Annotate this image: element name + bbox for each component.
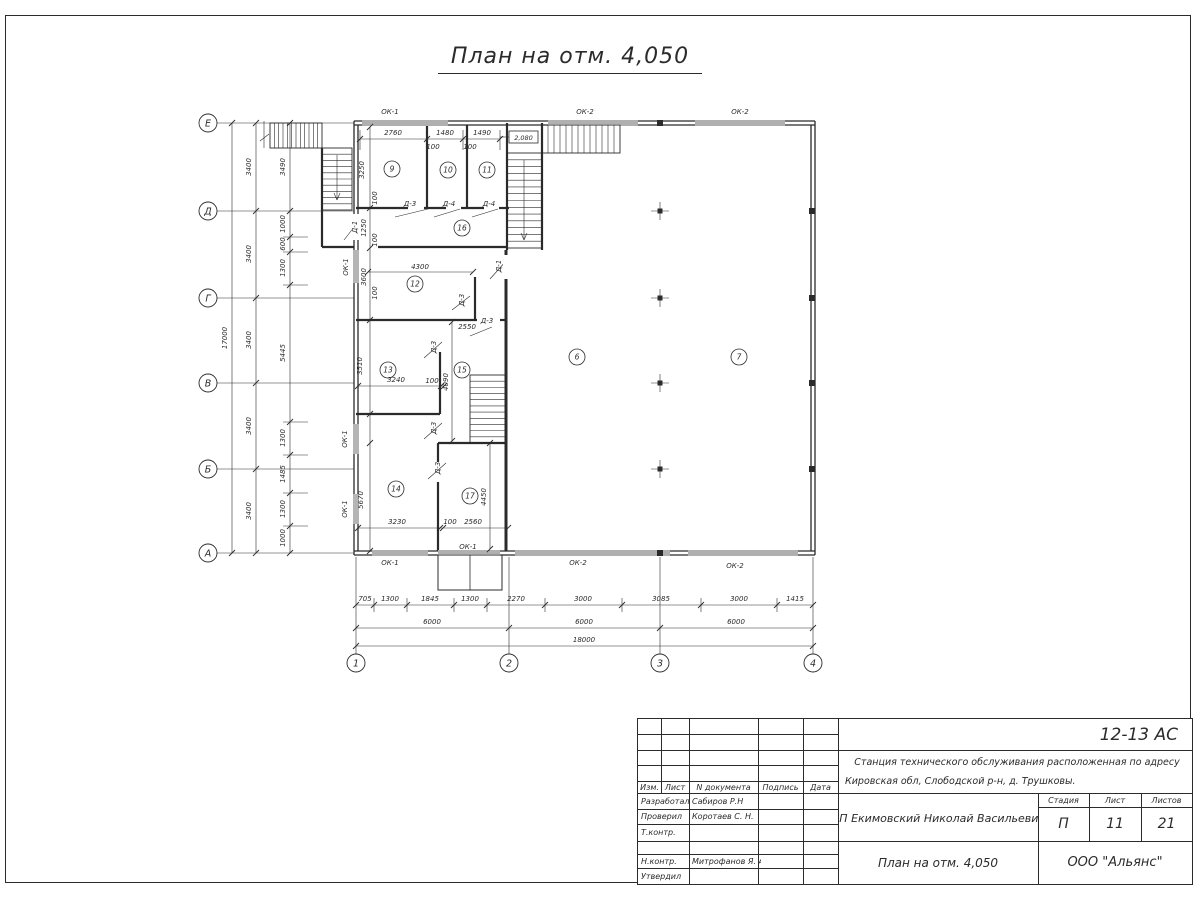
stamp-doc-number: 12-13 АС <box>968 719 1178 750</box>
drawing-title: План на отм. 4,050 <box>438 44 702 74</box>
stamp-role: Разработал <box>638 793 692 809</box>
window-label: ОК-2 <box>569 559 587 567</box>
stamp-name <box>689 868 761 884</box>
dim-text: 6000 <box>727 618 745 626</box>
column <box>658 296 663 301</box>
column <box>658 209 663 214</box>
axis-label: Г <box>205 294 211 305</box>
dim-text: 4450 <box>480 488 488 506</box>
column <box>658 467 663 472</box>
column <box>658 381 663 386</box>
room-number: 15 <box>457 366 467 375</box>
door-label: Д-3 <box>434 462 442 475</box>
stamp-name: Митрофанов Я. А. <box>689 854 761 868</box>
stamp-header-doc: N документа <box>689 781 758 793</box>
dimension-line <box>521 233 524 240</box>
dim-text: 100 <box>371 286 379 300</box>
dim-text: 1300 <box>381 595 399 603</box>
room-number: 6 <box>575 353 580 362</box>
dim-text: 100 <box>425 377 439 385</box>
room-number: 14 <box>391 485 401 494</box>
dim-text: 3000 <box>574 595 592 603</box>
dim-text: 3490 <box>279 158 287 176</box>
stamp-role: Т.контр. <box>638 824 692 841</box>
dim-text: 1300 <box>279 500 287 518</box>
axis-label: А <box>204 549 212 560</box>
dim-text: 3085 <box>652 595 670 603</box>
window-label: ОК-2 <box>576 108 594 116</box>
dim-text: 4300 <box>411 263 429 271</box>
stamp-name: Сабиров Р.Н <box>689 793 761 809</box>
door-label: Д-4 <box>442 200 455 208</box>
window-label: ОК-1 <box>342 258 350 275</box>
wall-column <box>809 380 815 386</box>
dimension-line <box>260 134 269 141</box>
room-number: 12 <box>410 280 420 289</box>
axis-label: Д <box>203 207 211 218</box>
dim-text: 100 <box>443 518 457 526</box>
door-opening <box>503 255 510 279</box>
dim-text: 4090 <box>442 373 450 391</box>
wall-column <box>657 120 663 126</box>
dim-text: 3510 <box>356 357 364 375</box>
stamp-stage-header: Стадия <box>1038 793 1089 807</box>
wall-column <box>657 550 663 556</box>
dim-text: 6000 <box>423 618 441 626</box>
dimension-line <box>524 233 527 240</box>
door-label: Д-1 <box>351 221 359 234</box>
room-number: 13 <box>383 366 393 375</box>
room-number: 16 <box>457 224 467 233</box>
window-label: ОК-2 <box>731 108 749 116</box>
dim-text: 3250 <box>358 161 366 179</box>
dim-text: 1845 <box>421 595 439 603</box>
axis-label: Б <box>205 465 212 476</box>
dim-text: 100 <box>371 191 379 205</box>
dim-text: 2550 <box>458 323 476 331</box>
stamp-organization: ООО "Альянс" <box>1038 841 1192 884</box>
door-label: Д-4 <box>482 200 495 208</box>
dim-text: 3400 <box>245 331 253 349</box>
stair-flight <box>470 375 505 443</box>
dimension-line <box>434 209 460 217</box>
dim-text: 18000 <box>573 636 596 644</box>
dim-text: 3600 <box>360 268 368 286</box>
dim-text: 3400 <box>245 158 253 176</box>
dim-text: 3400 <box>245 502 253 520</box>
window-label: ОК-1 <box>341 430 349 447</box>
dim-text: 100 <box>371 233 379 247</box>
dim-text: 1300 <box>279 429 287 447</box>
stamp-name: Коротаев С. Н. <box>689 809 761 824</box>
dim-text: 1490 <box>473 129 491 137</box>
door-label: Д-3 <box>403 200 416 208</box>
wall-column <box>809 295 815 301</box>
dim-text: 1000 <box>279 529 287 547</box>
dim-text: 705 <box>358 595 372 603</box>
dim-text: 100 <box>463 143 477 151</box>
dim-text: 3230 <box>388 518 406 526</box>
stamp-role: Проверил <box>638 809 692 824</box>
door-label: Д-3 <box>480 317 493 325</box>
dim-text: 100 <box>426 143 440 151</box>
dimension-line <box>337 193 340 200</box>
axis-label: В <box>205 379 212 390</box>
stamp-sheet-value: 11 <box>1089 807 1141 841</box>
stamp-sheet-header: Лист <box>1089 793 1141 807</box>
room-number: 7 <box>737 353 742 362</box>
door-label: Д-3 <box>430 341 438 354</box>
stamp-sheets-header: Листов <box>1141 793 1192 807</box>
stamp-header-date: Дата <box>803 781 838 793</box>
window-label: ОК-1 <box>341 500 349 517</box>
window-label: ОК-1 <box>381 559 398 567</box>
dim-text: 1000 <box>279 215 287 233</box>
dim-text: 3400 <box>245 245 253 263</box>
room-number: 11 <box>482 166 492 175</box>
dim-text: 1415 <box>786 595 804 603</box>
dim-text: 1485 <box>279 465 287 483</box>
dim-text: 17000 <box>221 326 229 349</box>
dim-text: 2270 <box>507 595 525 603</box>
stamp-sheet-title: План на отм. 4,050 <box>838 841 1038 884</box>
dimension-line <box>395 209 428 217</box>
dim-text: 600 <box>279 237 287 251</box>
stamp-header-sign: Подпись <box>758 781 803 793</box>
dim-text: 1250 <box>360 219 368 237</box>
door-label: Д-3 <box>458 294 466 307</box>
title-block: Изм. Лист N документа Подпись Дата Разра… <box>637 718 1193 885</box>
door-label: Д-1 <box>495 260 503 273</box>
dim-text: 2560 <box>464 518 482 526</box>
axis-label: 2 <box>506 659 512 670</box>
axis-label: 4 <box>810 659 816 670</box>
stamp-sheets-value: 21 <box>1141 807 1192 841</box>
stamp-header-list: Лист <box>661 781 689 793</box>
room-number: 17 <box>465 492 475 501</box>
axis-label: 1 <box>353 659 359 670</box>
stamp-project-line2: Кировская обл, Слободской р-н, д. Трушко… <box>842 771 1195 791</box>
window-label: ОК-1 <box>381 108 398 116</box>
dim-text: 5670 <box>357 491 365 509</box>
wall-column <box>809 208 815 214</box>
dim-text: 6000 <box>575 618 593 626</box>
drawing-sheet: { "sheet": { "title": "План на отм. 4,05… <box>0 0 1200 900</box>
window-label: ОК-1 <box>459 543 476 551</box>
dim-text: 3400 <box>245 417 253 435</box>
dim-text: 1480 <box>436 129 454 137</box>
room-number: 10 <box>443 166 453 175</box>
dim-text: 1300 <box>461 595 479 603</box>
stamp-client: ИП Екимовский Николай Васильевич <box>838 795 1038 841</box>
dim-text: 2760 <box>384 129 402 137</box>
stamp-stage-value: П <box>1038 807 1089 841</box>
window-label: ОК-2 <box>726 562 744 570</box>
dim-text: 5445 <box>279 344 287 362</box>
wall-column <box>809 466 815 472</box>
axis-label: Е <box>205 119 211 130</box>
stamp-role: Утвердил <box>638 868 692 884</box>
dim-text: 1300 <box>279 259 287 277</box>
dimension-line <box>472 209 498 217</box>
dimension-line <box>334 193 337 200</box>
stamp-header-izm: Изм. <box>638 781 661 793</box>
stamp-name <box>689 824 761 841</box>
axis-label: 3 <box>657 659 663 670</box>
dim-text: 3000 <box>730 595 748 603</box>
door-label: Д-3 <box>430 422 438 435</box>
room-number: 9 <box>390 165 395 174</box>
dim-text: 3240 <box>387 376 405 384</box>
stamp-role: Н.контр. <box>638 854 692 868</box>
stamp-project-line1: Станция технического обслуживания распол… <box>842 752 1192 772</box>
level-mark-text: 2,080 <box>514 134 533 142</box>
